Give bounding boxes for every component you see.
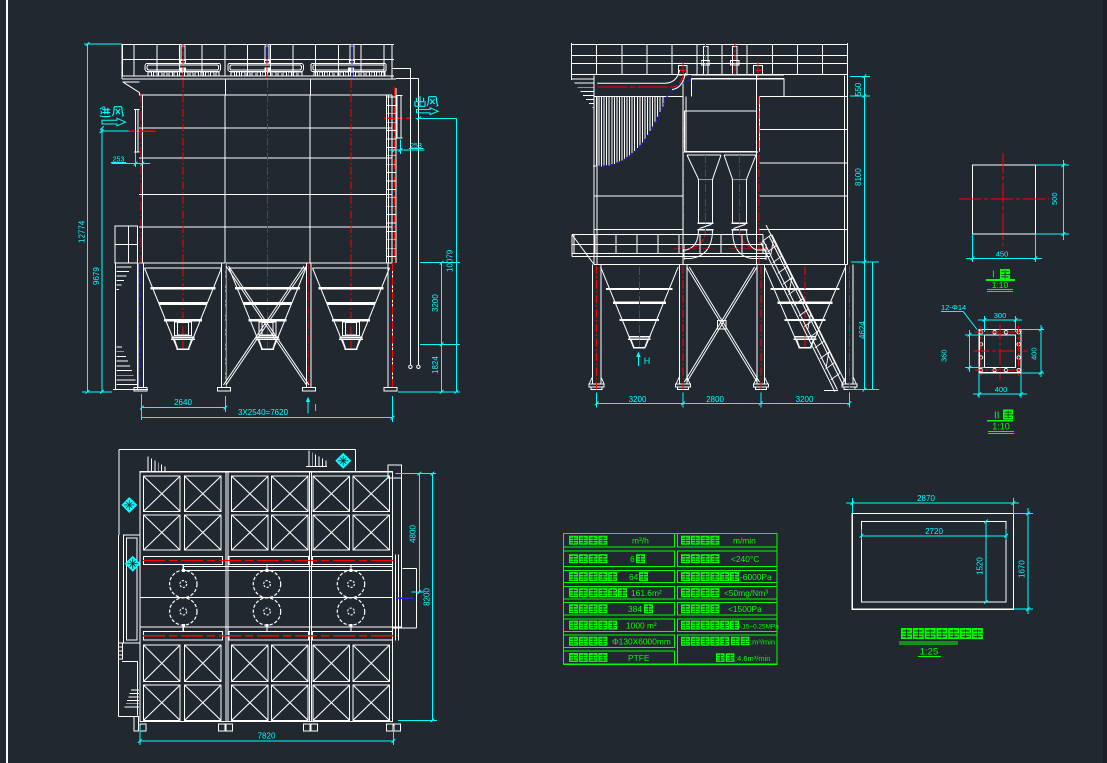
svg-text:500: 500 (1050, 192, 1059, 205)
svg-text:161.6m²: 161.6m² (631, 588, 662, 598)
svg-text:8200: 8200 (423, 588, 432, 606)
svg-text:10079: 10079 (446, 249, 455, 272)
svg-text:-6000Pa: -6000Pa (740, 572, 772, 582)
svg-text:3X2540=7620: 3X2540=7620 (238, 408, 289, 417)
svg-text:7820: 7820 (258, 732, 276, 741)
svg-text:2800: 2800 (706, 395, 724, 404)
svg-text:12-Φ14: 12-Φ14 (941, 303, 966, 312)
svg-text:1:25: 1:25 (920, 647, 939, 658)
svg-text:12774: 12774 (78, 220, 87, 243)
svg-text:360: 360 (940, 349, 949, 362)
svg-text:<50mg/Nm³: <50mg/Nm³ (724, 588, 768, 598)
svg-text:1670: 1670 (1018, 560, 1027, 578)
svg-text:9679: 9679 (92, 267, 101, 285)
svg-text:2720: 2720 (925, 527, 943, 536)
svg-text:3200: 3200 (629, 395, 647, 404)
svg-text:<240°C: <240°C (731, 554, 759, 564)
svg-text:1520: 1520 (976, 557, 985, 575)
svg-text:2640: 2640 (174, 398, 192, 407)
svg-text::m³/min: :m³/min (750, 637, 775, 646)
svg-text:m³/h: m³/h (632, 536, 649, 546)
svg-text:H: H (644, 356, 651, 366)
svg-text:2870: 2870 (917, 494, 935, 503)
svg-text:64: 64 (629, 572, 639, 582)
svg-text:450: 450 (996, 250, 1009, 259)
svg-text:550: 550 (854, 82, 863, 96)
svg-text:3200: 3200 (431, 294, 440, 312)
svg-text::4.6m³/min: :4.6m³/min (735, 654, 770, 663)
svg-text:1824: 1824 (431, 356, 440, 374)
svg-text:8100: 8100 (854, 168, 863, 186)
svg-text:1:10: 1:10 (992, 422, 1010, 432)
svg-text:300: 300 (994, 311, 1007, 320)
svg-text:4800: 4800 (409, 525, 418, 543)
svg-text:400: 400 (1030, 347, 1039, 360)
svg-text:1000 m²: 1000 m² (626, 621, 657, 631)
svg-text:m/min: m/min (733, 536, 756, 546)
svg-text:I: I (992, 270, 995, 281)
svg-text:I: I (314, 403, 317, 414)
svg-text:<1500Pa: <1500Pa (728, 604, 762, 614)
svg-text:Φ130X6000mm: Φ130X6000mm (612, 637, 671, 647)
svg-text:4624: 4624 (858, 321, 867, 339)
svg-text:1:10: 1:10 (992, 280, 1009, 290)
svg-text:400: 400 (995, 385, 1008, 394)
svg-text:0.15~0.25MPa: 0.15~0.25MPa (737, 624, 779, 631)
svg-text:3200: 3200 (796, 395, 814, 404)
svg-text:6: 6 (630, 554, 635, 564)
svg-text:PTFE: PTFE (628, 653, 650, 663)
svg-text:384: 384 (628, 604, 642, 614)
